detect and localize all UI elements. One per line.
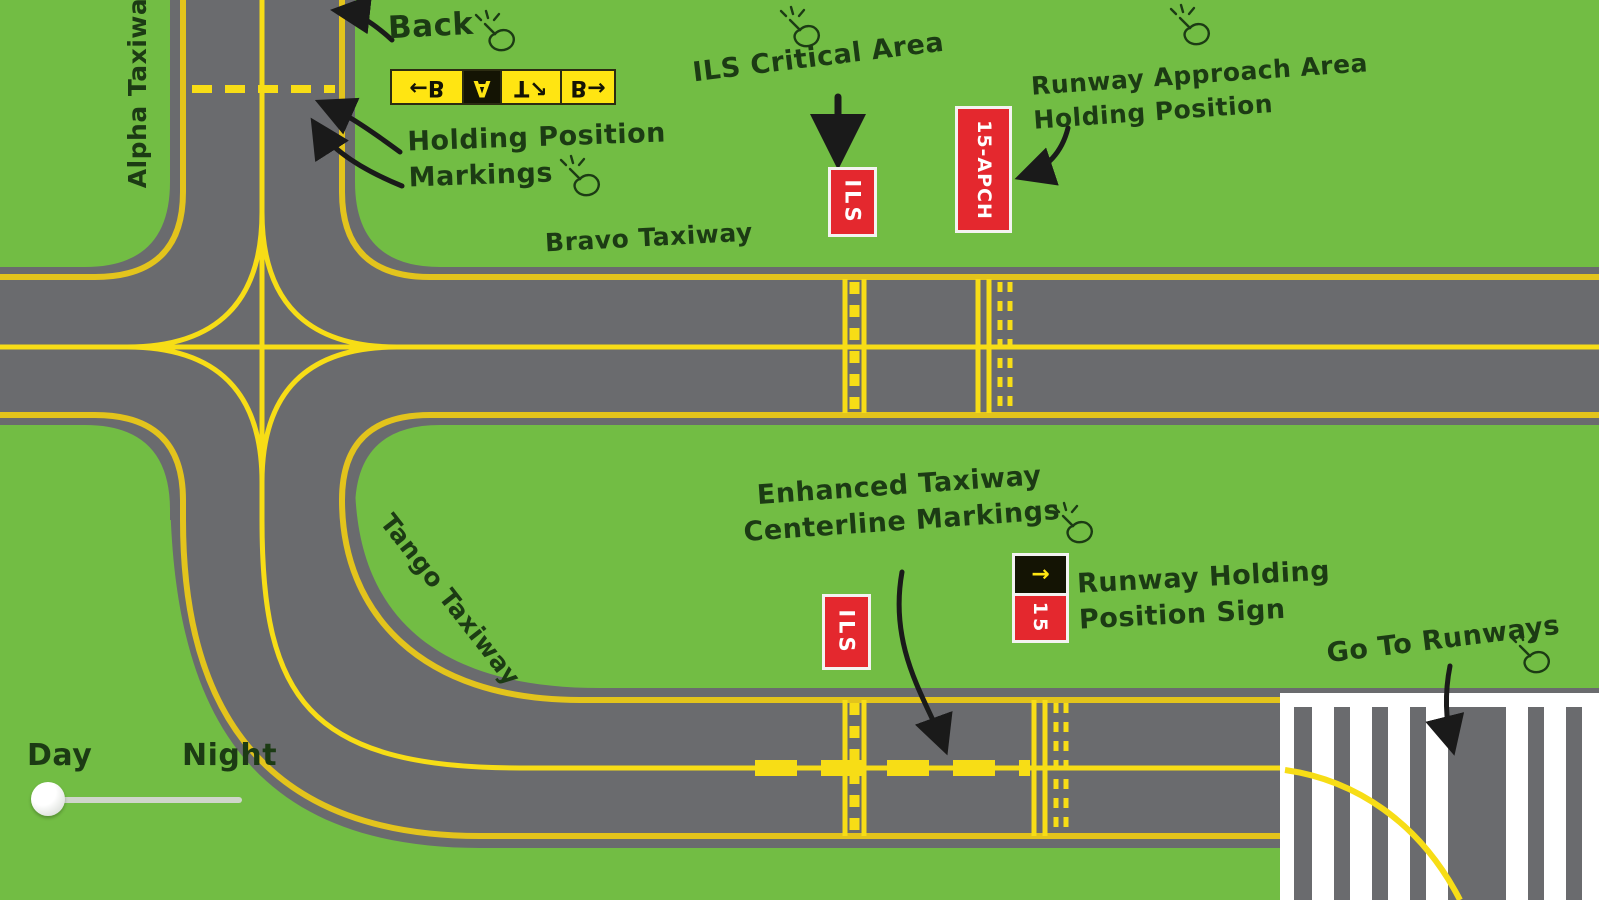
fillet-top-left xyxy=(85,182,170,267)
location-sign-panel-a: A xyxy=(464,71,502,103)
runway-holding-sign-label[interactable]: Runway Holding Position Sign xyxy=(1076,553,1333,638)
fillet-bottom-left xyxy=(85,425,170,510)
direction-sign-panel-b-left: ←B xyxy=(392,71,464,103)
pointing-hand-icon[interactable] xyxy=(476,11,514,50)
holding-sign-runway-panel: 15 xyxy=(1012,593,1069,643)
taxiway-direction-sign[interactable]: ←B A T↗ B→ xyxy=(390,69,616,105)
holding-sign-arrow-panel: → xyxy=(1012,553,1069,593)
back-button[interactable]: Back xyxy=(387,6,474,46)
runway-approach-holding-sign[interactable]: 15-APCH xyxy=(955,106,1012,233)
direction-sign-panel-b-right: B→ xyxy=(562,71,614,103)
right-arrow-icon: → xyxy=(1031,562,1049,587)
pointing-hand-icon[interactable] xyxy=(1171,5,1209,44)
day-night-slider-knob[interactable] xyxy=(31,782,65,816)
fillet-bottom-right xyxy=(355,425,440,510)
runway[interactable] xyxy=(1280,693,1599,900)
ils-holding-sign-upper[interactable]: ILS xyxy=(828,167,877,237)
alpha-taxiway-label: Alpha Taxiway xyxy=(120,0,156,188)
day-label: Day xyxy=(27,738,92,774)
holding-position-markings-label[interactable]: Holding Position Markings xyxy=(407,116,668,197)
day-night-slider-track[interactable] xyxy=(46,797,242,803)
runway-holding-position-sign[interactable]: → 15 xyxy=(1012,553,1069,643)
direction-sign-panel-t: T↗ xyxy=(502,71,562,103)
ils-holding-sign-lower[interactable]: ILS xyxy=(822,594,871,670)
night-label: Night xyxy=(182,738,277,774)
taxiway-diagram: Back Holding Position Markings ILS Criti… xyxy=(0,0,1599,900)
